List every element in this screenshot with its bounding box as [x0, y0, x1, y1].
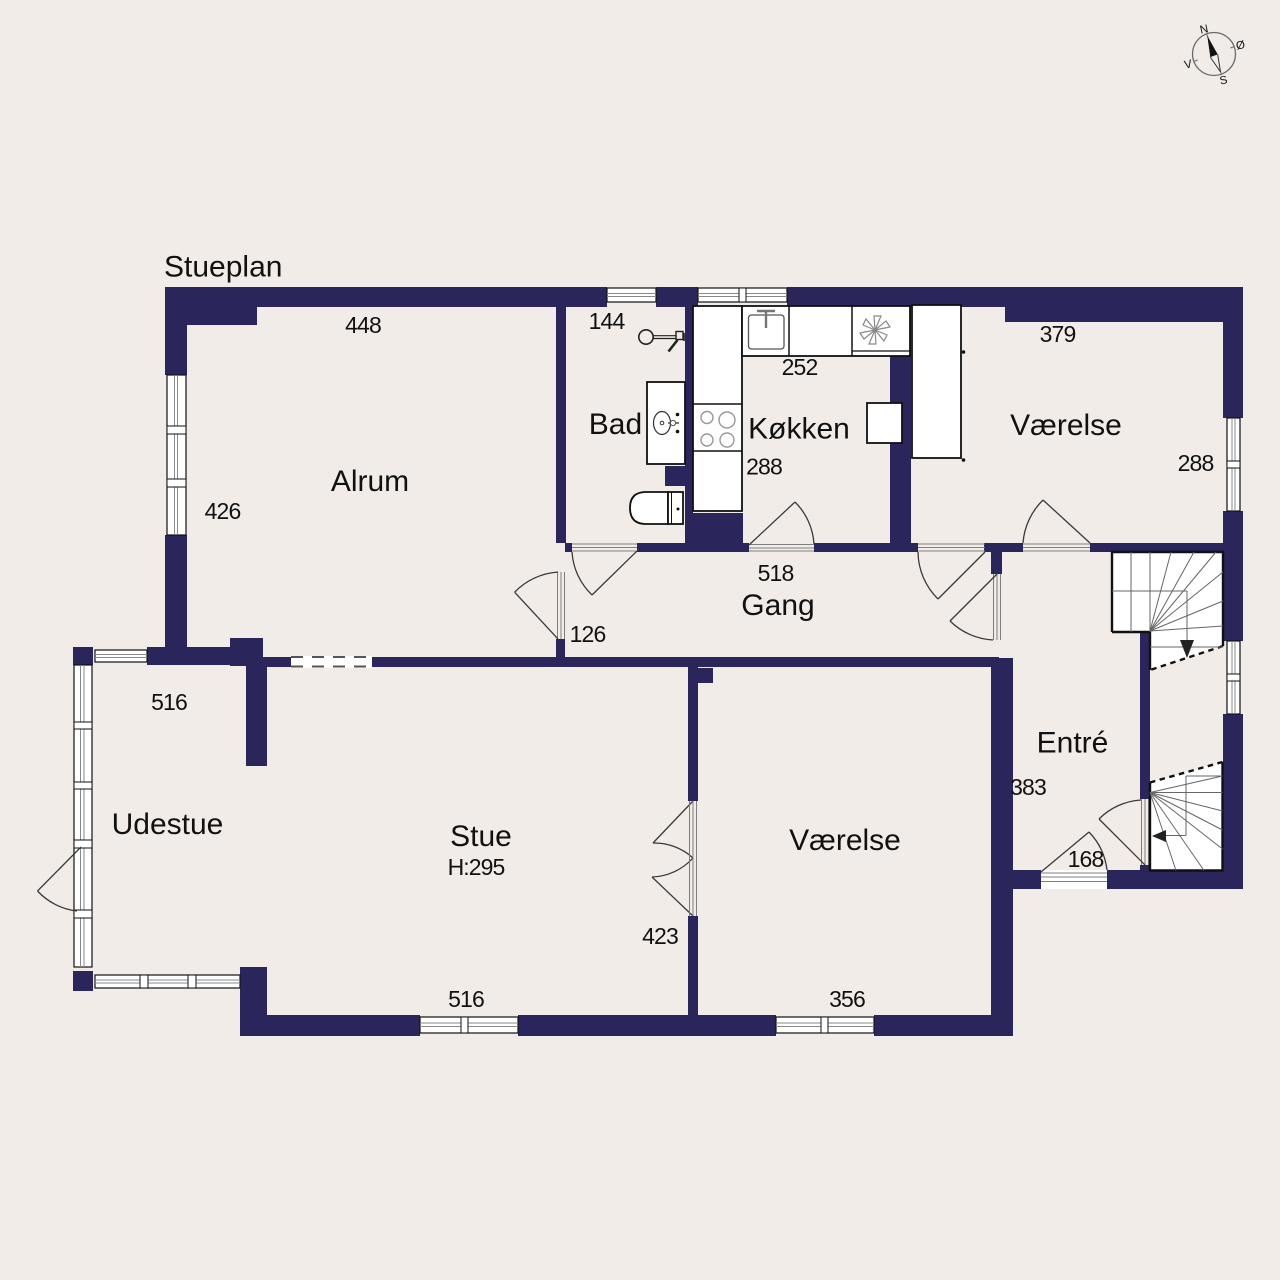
- svg-text:288: 288: [746, 454, 782, 480]
- svg-text:423: 423: [642, 923, 678, 949]
- svg-text:356: 356: [829, 986, 865, 1012]
- svg-text:Gang: Gang: [741, 589, 814, 622]
- svg-text:Stueplan: Stueplan: [164, 251, 282, 284]
- svg-text:Værelse: Værelse: [1010, 409, 1122, 442]
- svg-text:516: 516: [448, 986, 484, 1012]
- svg-text:518: 518: [758, 560, 794, 586]
- svg-text:516: 516: [151, 689, 187, 715]
- svg-text:144: 144: [589, 308, 626, 334]
- svg-text:Bad: Bad: [589, 408, 642, 441]
- svg-text:288: 288: [1178, 450, 1214, 476]
- svg-text:Udestue: Udestue: [112, 808, 224, 841]
- svg-text:379: 379: [1040, 321, 1076, 347]
- svg-text:Køkken: Køkken: [748, 413, 850, 446]
- svg-text:448: 448: [345, 312, 381, 338]
- svg-text:Alrum: Alrum: [331, 465, 409, 498]
- svg-text:Stue: Stue: [450, 820, 512, 853]
- svg-text:126: 126: [570, 621, 606, 647]
- svg-text:426: 426: [205, 498, 241, 524]
- svg-text:168: 168: [1068, 846, 1104, 872]
- svg-text:252: 252: [782, 354, 818, 380]
- svg-text:H:295: H:295: [448, 854, 505, 880]
- svg-text:383: 383: [1010, 774, 1046, 800]
- svg-text:Værelse: Værelse: [789, 824, 901, 857]
- svg-text:Entré: Entré: [1037, 727, 1109, 760]
